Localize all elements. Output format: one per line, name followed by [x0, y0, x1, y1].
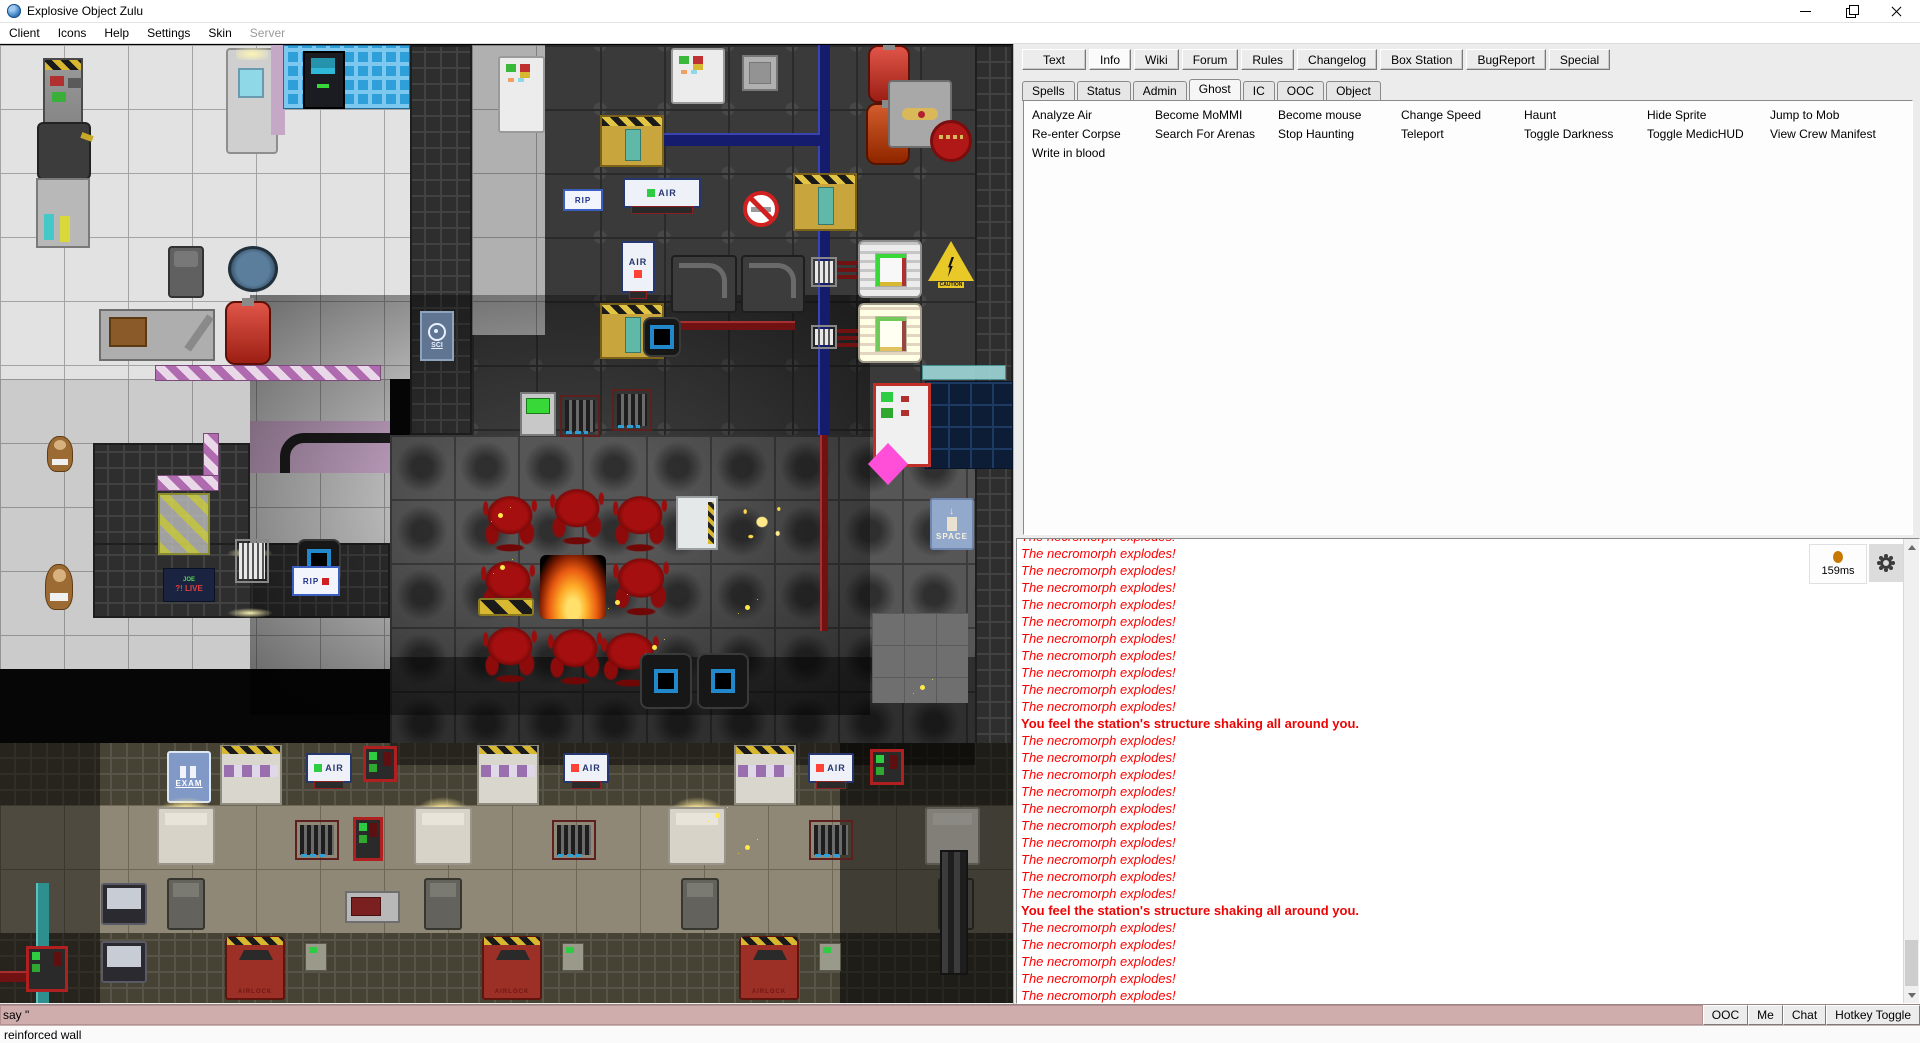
conveyor-column[interactable] [203, 433, 219, 477]
command-column: Change SpeedTeleport [1401, 106, 1524, 534]
air-dispenser-sign[interactable]: AIR [808, 753, 854, 783]
office-chair[interactable] [168, 246, 204, 298]
say-input[interactable] [0, 1005, 1703, 1025]
command-verb[interactable]: Toggle Darkness [1524, 125, 1647, 144]
air-grille[interactable] [612, 389, 652, 431]
status-bar: reinforced wall [0, 1025, 1920, 1043]
airlock-door[interactable]: AIRLOCK [225, 936, 285, 1000]
title-bar[interactable]: Explosive Object Zulu [0, 0, 1920, 23]
blood-splatter[interactable] [478, 488, 542, 556]
blood-splatter[interactable] [608, 550, 674, 620]
command-column: Analyze AirRe-enter CorpseWrite in blood [1032, 106, 1155, 534]
green-led-icon [314, 764, 322, 772]
up-arrow-icon [1908, 545, 1916, 550]
menu-item[interactable]: Icons [49, 24, 96, 42]
red-led-icon [816, 764, 824, 772]
menu-item[interactable]: Client [0, 24, 49, 42]
drill-machine[interactable] [37, 122, 91, 180]
sparkle [745, 845, 750, 850]
menu-item[interactable]: Server [241, 24, 294, 42]
microwave-machine[interactable] [345, 891, 400, 923]
red-pipe-vertical[interactable] [820, 435, 828, 631]
red-square-icon [322, 578, 329, 585]
chat-message: The necromorph explodes! [1021, 936, 1919, 953]
menu-item[interactable]: Skin [199, 24, 240, 42]
chat-message: The necromorph explodes! [1021, 732, 1919, 749]
info-tab[interactable]: OOC [1277, 81, 1324, 101]
airlock-door[interactable]: AIRLOCK [482, 936, 542, 1000]
chat-message: You feel the station's structure shaking… [1021, 902, 1919, 919]
chat-message: The necromorph explodes! [1021, 647, 1919, 664]
workbench[interactable] [99, 309, 215, 361]
space-sign[interactable]: ↓ SPACE [930, 498, 974, 550]
green-screen-console[interactable] [520, 392, 556, 436]
status-text: reinforced wall [0, 1028, 81, 1042]
info-tab[interactable]: Spells [1022, 81, 1075, 101]
game-map-viewport[interactable]: SCI JOE ?! LIVE RIP [0, 44, 1013, 1003]
air-dispenser-sign[interactable]: AIR [623, 178, 701, 208]
floor-vent[interactable] [640, 653, 692, 709]
people-icon [180, 766, 198, 778]
air-alarm[interactable] [353, 817, 383, 861]
gray-crate[interactable] [742, 55, 778, 91]
red-pipe-trio[interactable] [837, 261, 859, 265]
quick-buttons: OOCMeChatHotkey Toggle [1703, 1005, 1920, 1025]
chat-message: The necromorph explodes! [1021, 953, 1919, 970]
ping-indicator: 159ms [1809, 544, 1867, 584]
toolbar-tab[interactable]: Forum [1182, 49, 1239, 70]
scrollbar-thumb[interactable] [1905, 940, 1918, 986]
minimize-icon[interactable] [1782, 0, 1828, 22]
chat-message: The necromorph explodes! [1021, 681, 1919, 698]
chat-settings-button[interactable] [1869, 544, 1903, 582]
scrubber-vent[interactable] [811, 325, 837, 349]
chat-message: The necromorph explodes! [1021, 538, 1919, 545]
chat-message: The necromorph explodes! [1021, 664, 1919, 681]
info-tab[interactable]: Ghost [1189, 79, 1241, 102]
chat-message: The necromorph explodes! [1021, 698, 1919, 715]
toolbar-tab[interactable]: Box Station [1380, 49, 1463, 70]
toolbar-tab[interactable]: Info [1089, 49, 1131, 70]
command-verb[interactable]: Toggle MedicHUD [1647, 125, 1770, 144]
white-tank-machine[interactable] [858, 303, 922, 363]
wall-monitor[interactable] [101, 941, 147, 983]
toolbar-tab[interactable]: Wiki [1134, 49, 1179, 70]
info-tab-row: SpellsStatusAdminGhostICOOCObject [1022, 79, 1383, 101]
sparkle [500, 565, 505, 570]
air-grille[interactable] [552, 820, 596, 860]
corridor-machine[interactable] [498, 56, 545, 133]
chat-message: The necromorph explodes! [1021, 834, 1919, 851]
chat-message: The necromorph explodes! [1021, 630, 1919, 647]
air-grille[interactable] [809, 820, 853, 860]
chat-message: The necromorph explodes! [1021, 919, 1919, 936]
blood-splatter[interactable] [545, 481, 609, 549]
sci-sign[interactable]: SCI [420, 311, 454, 361]
command-verb[interactable]: Hide Sprite [1647, 106, 1770, 125]
command-verb[interactable]: Jump to Mob [1770, 106, 1893, 125]
white-door[interactable] [676, 496, 718, 550]
pink-pipe-room[interactable] [250, 421, 390, 473]
air-dispenser-sign[interactable]: AIR [306, 753, 352, 783]
air-alarm[interactable] [870, 749, 904, 785]
red-led-icon [571, 764, 579, 772]
scroll-down-button[interactable] [1904, 987, 1919, 1003]
yellow-glass-door[interactable] [158, 493, 210, 555]
byond-globe-icon [7, 4, 21, 18]
blood-splatter[interactable] [608, 488, 672, 556]
red-pipe-trio[interactable] [837, 329, 859, 333]
info-tab[interactable]: Object [1326, 81, 1381, 101]
chat-message: The necromorph explodes! [1021, 562, 1919, 579]
chat-message: The necromorph explodes! [1021, 885, 1919, 902]
command-verb[interactable]: Become mouse [1278, 106, 1401, 125]
hazard-crate[interactable] [478, 598, 534, 616]
command-column: Hide SpriteToggle MedicHUD [1647, 106, 1770, 534]
conveyor-belt[interactable] [157, 475, 219, 491]
quick-button[interactable]: OOC [1703, 1005, 1748, 1025]
chair[interactable] [167, 878, 205, 930]
lightning-icon [948, 257, 954, 277]
restore-icon[interactable] [1828, 0, 1874, 22]
wall-vent[interactable] [26, 946, 68, 992]
gold-sparkle-burst [734, 496, 790, 548]
ping-dot-icon [1833, 551, 1843, 563]
atmos-machine[interactable] [671, 48, 725, 104]
down-arrow-icon [1908, 993, 1916, 998]
quick-button[interactable]: Chat [1783, 1005, 1826, 1025]
rip-sign[interactable]: RIP [563, 189, 603, 211]
exam-sign[interactable]: EXAM [167, 751, 211, 803]
red-round-emblem[interactable] [930, 120, 972, 162]
menu-item[interactable]: Settings [138, 24, 199, 42]
canister-icon [947, 517, 957, 531]
door-light [227, 608, 273, 618]
red-canister[interactable] [225, 301, 271, 365]
warning-triangle-icon [928, 241, 974, 281]
card-reader[interactable] [562, 943, 584, 971]
white-tank-machine[interactable] [858, 240, 922, 298]
ping-value: 159ms [1821, 565, 1854, 577]
sparkle [615, 600, 620, 605]
chat-message: The necromorph explodes! [1021, 545, 1919, 562]
yellow-airlock-door[interactable] [600, 115, 664, 167]
sparkle [498, 513, 503, 518]
quick-button[interactable]: Hotkey Toggle [1826, 1005, 1920, 1025]
yellow-airlock-door[interactable] [793, 173, 857, 231]
research-console[interactable] [303, 51, 345, 109]
chat-message: The necromorph explodes! [1021, 749, 1919, 766]
exam-table[interactable] [414, 807, 472, 865]
command-verb[interactable]: Analyze Air [1032, 106, 1155, 125]
command-column: Become mouseStop Haunting [1278, 106, 1401, 534]
air-alarm[interactable] [363, 746, 397, 782]
striped-door[interactable] [734, 745, 796, 805]
chat-message: The necromorph explodes! [1021, 596, 1919, 613]
navy-tank-tiles[interactable] [925, 381, 1013, 469]
chat-message: The necromorph explodes! [1021, 970, 1919, 987]
command-input-bar: OOCMeChatHotkey Toggle [0, 1004, 1920, 1025]
air-dispenser-sign[interactable]: AIR [563, 753, 609, 783]
chat-scrollbar[interactable] [1903, 539, 1919, 1003]
gear-icon [1880, 557, 1892, 569]
window-title: Explosive Object Zulu [27, 4, 143, 18]
monkey[interactable] [45, 564, 73, 610]
command-column: HauntToggle Darkness [1524, 106, 1647, 534]
striped-door[interactable] [477, 745, 539, 805]
command-verb[interactable]: View Crew Manifest [1770, 125, 1893, 144]
air-grille[interactable] [295, 820, 339, 860]
atmos-pump[interactable] [741, 255, 805, 313]
command-verb[interactable]: Search For Arenas [1155, 125, 1278, 144]
card-reader[interactable] [819, 943, 841, 971]
chat-message: The necromorph explodes! [1021, 851, 1919, 868]
sparkle [920, 685, 925, 690]
toolbar-tab[interactable]: Special [1549, 49, 1610, 70]
command-verb[interactable]: Re-enter Corpse [1032, 125, 1155, 144]
toolbar-tab-row: TextInfoWikiForumRulesChangelogBox Stati… [1022, 49, 1610, 70]
info-tab[interactable]: Admin [1133, 81, 1187, 101]
air-dispenser-sign[interactable]: AIR [621, 241, 655, 293]
conveyor-belt[interactable] [155, 365, 381, 381]
chair[interactable] [681, 878, 719, 930]
divider-wall[interactable] [410, 45, 472, 435]
close-icon[interactable] [1874, 0, 1920, 22]
command-verb[interactable]: Become MoMMI [1155, 106, 1278, 125]
air-grille[interactable] [560, 395, 600, 437]
atom-icon [428, 323, 446, 341]
blue-pipe-vertical[interactable] [818, 45, 830, 435]
chat-message: The necromorph explodes! [1021, 800, 1919, 817]
joe-live-sign[interactable]: JOE ?! LIVE [163, 568, 215, 602]
exam-table[interactable] [157, 807, 215, 865]
floor-vent[interactable] [697, 653, 749, 709]
scrubber-vent[interactable] [811, 257, 837, 287]
control-panel: TextInfoWikiForumRulesChangelogBox Stati… [1013, 44, 1920, 1004]
wall-monitor[interactable] [101, 883, 147, 925]
info-tab[interactable]: Status [1077, 81, 1131, 101]
toolbar-tab[interactable]: Rules [1241, 49, 1294, 70]
chat-messages: The necromorph explodes!The necromorph e… [1021, 538, 1919, 1004]
grinder-machine[interactable] [228, 246, 278, 292]
no-smoking-sign[interactable] [743, 191, 779, 227]
monkey[interactable] [47, 436, 73, 472]
toolbar-tab[interactable]: BugReport [1466, 49, 1545, 70]
info-tab[interactable]: IC [1243, 81, 1275, 101]
gold-emblem-icon [902, 108, 938, 120]
scroll-up-button[interactable] [1904, 539, 1919, 555]
ribbed-column[interactable] [940, 850, 968, 975]
sparkle [715, 813, 720, 818]
command-verb[interactable]: Change Speed [1401, 106, 1524, 125]
chat-message: The necromorph explodes! [1021, 783, 1919, 800]
chat-message: The necromorph explodes! [1021, 579, 1919, 596]
airlock-door[interactable]: AIRLOCK [739, 936, 799, 1000]
floor-vent[interactable] [643, 317, 681, 357]
striped-door[interactable] [220, 745, 282, 805]
menu-item[interactable]: Help [95, 24, 138, 42]
chat-log[interactable]: The necromorph explodes!The necromorph e… [1016, 538, 1920, 1004]
rip-sign[interactable]: RIP [292, 566, 340, 596]
quick-button[interactable]: Me [1748, 1005, 1783, 1025]
command-column: Become MoMMISearch For Arenas [1155, 106, 1278, 534]
chat-message: The necromorph explodes! [1021, 817, 1919, 834]
chat-message: The necromorph explodes! [1021, 613, 1919, 630]
chair[interactable] [424, 878, 462, 930]
commands-panel: Analyze AirRe-enter CorpseWrite in blood… [1023, 100, 1913, 535]
command-verb[interactable]: Teleport [1401, 125, 1524, 144]
card-reader[interactable] [305, 943, 327, 971]
atmos-pump[interactable] [671, 255, 737, 313]
toolbar-tab[interactable]: Changelog [1297, 49, 1377, 70]
air-grille[interactable] [235, 539, 269, 583]
command-verb[interactable]: Write in blood [1032, 144, 1155, 163]
caution-sign[interactable]: CAUTION [928, 241, 974, 297]
chat-message: The necromorph explodes! [1021, 987, 1919, 1004]
sparkle [652, 645, 657, 650]
chat-message: The necromorph explodes! [1021, 868, 1919, 885]
chat-message: You feel the station's structure shaking… [1021, 715, 1919, 732]
command-verb[interactable]: Stop Haunting [1278, 125, 1401, 144]
command-verb[interactable]: Haunt [1524, 106, 1647, 125]
command-column: Jump to MobView Crew Manifest [1770, 106, 1893, 534]
dorm-floor[interactable] [0, 805, 1013, 933]
toolbar-tab[interactable]: Text [1022, 49, 1086, 70]
blue-pipe-horizontal[interactable] [658, 133, 820, 146]
blood-splatter[interactable] [478, 619, 542, 687]
down-arrow-icon: ↓ [949, 508, 955, 516]
menu-bar: ClientIconsHelpSettingsSkinServer [0, 23, 1920, 44]
window-strip[interactable] [922, 365, 1006, 380]
green-led-icon [647, 189, 655, 197]
red-led-icon [634, 270, 642, 278]
fire[interactable] [540, 555, 606, 619]
lab-fridge[interactable] [36, 178, 90, 248]
byond-client-window: Explosive Object Zulu ClientIconsHelpSet… [0, 0, 1920, 1040]
chat-message: The necromorph explodes! [1021, 766, 1919, 783]
sparkle [745, 605, 750, 610]
